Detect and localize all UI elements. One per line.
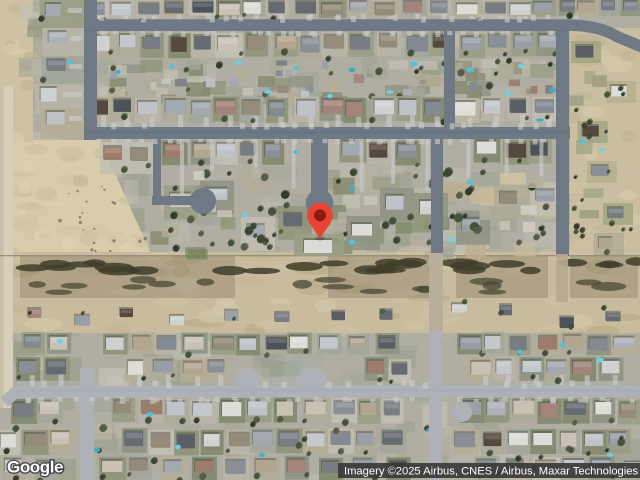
svg-text:Google: Google xyxy=(7,458,63,477)
svg-text:Imagery ©2025 Airbus, CNES / A: Imagery ©2025 Airbus, CNES / Airbus, Max… xyxy=(344,465,638,477)
